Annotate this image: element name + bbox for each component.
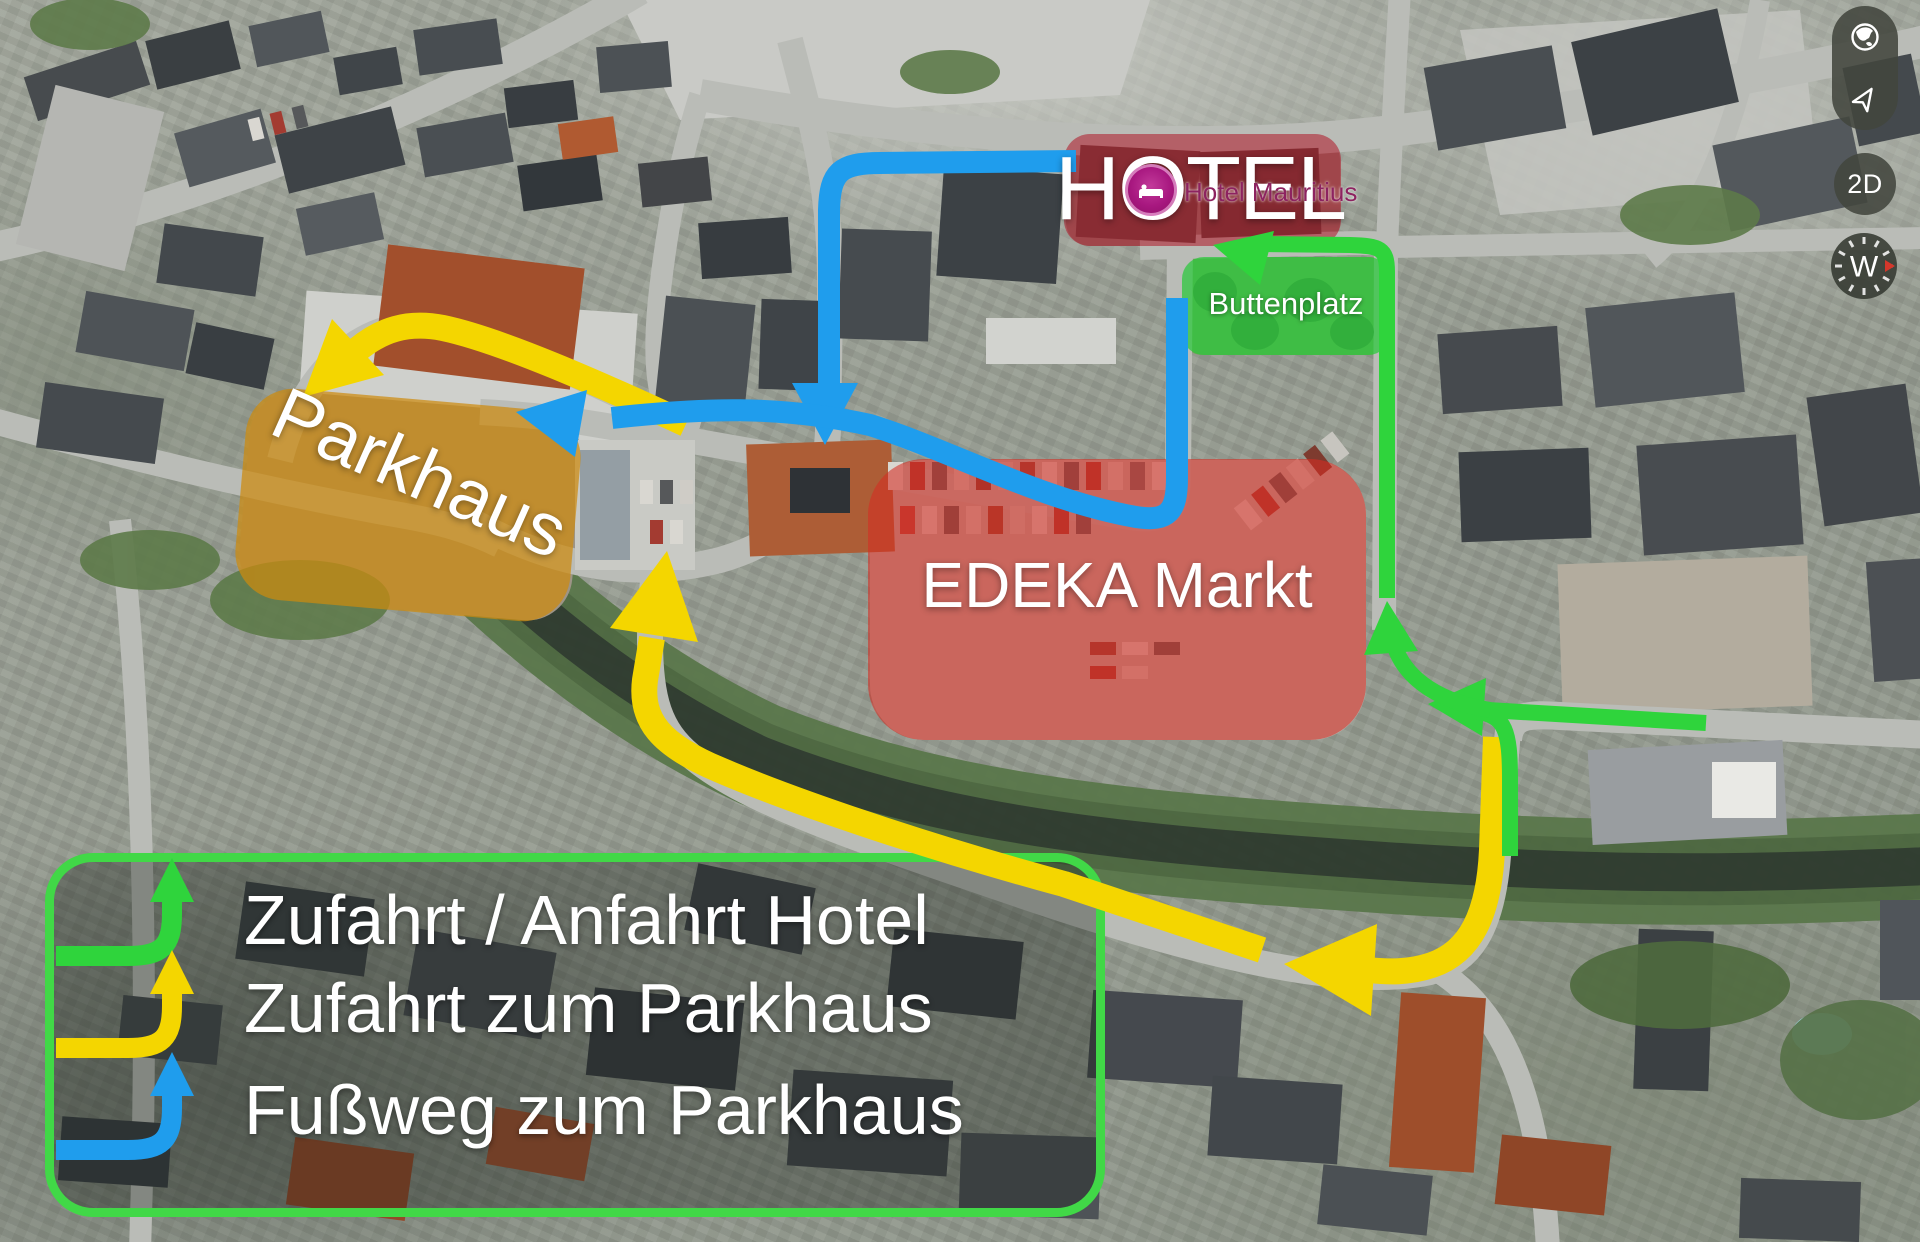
map-canvas[interactable]: HOTEL EDEKA Markt Parkhaus Buttenplatz H…	[0, 0, 1920, 1242]
globe-icon	[1848, 20, 1882, 54]
legend-item-footpath: Fußweg zum Parkhaus	[244, 1070, 964, 1150]
legend-arrows	[0, 0, 1920, 1242]
legend-arrow-parkhaus	[56, 992, 172, 1048]
2d-mode-label: 2D	[1847, 169, 1883, 200]
2d-mode-button[interactable]: 2D	[1834, 153, 1896, 215]
legend-arrow-footpath	[56, 1094, 172, 1150]
compass-control[interactable]: W	[1831, 233, 1897, 299]
my-location-button[interactable]	[1848, 82, 1882, 116]
globe-button[interactable]	[1848, 20, 1882, 54]
legend-item-parkhaus: Zufahrt zum Parkhaus	[244, 968, 933, 1048]
compass-icon: W	[1831, 233, 1897, 299]
map-tools-pill	[1832, 6, 1898, 130]
legend-item-hotel: Zufahrt / Anfahrt Hotel	[244, 880, 929, 960]
compass-heading-label: W	[1850, 251, 1879, 284]
legend-arrow-hotel	[56, 900, 172, 956]
compass-north-needle	[1885, 260, 1895, 272]
navigation-arrow-icon	[1848, 82, 1882, 116]
